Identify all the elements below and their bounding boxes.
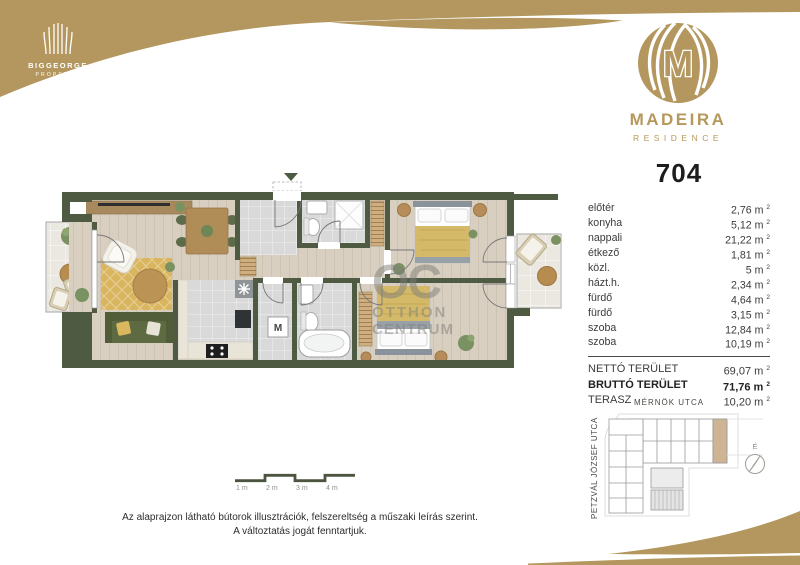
unit-info-panel: 704 előtér2,76 m 2konyha5,12 m 2nappali2… (588, 158, 770, 410)
sofa (105, 312, 173, 343)
headboard (413, 201, 472, 207)
room-label: fürdő (588, 307, 612, 322)
area-row: előtér2,76 m 2 (588, 202, 770, 217)
tv-console (78, 201, 192, 214)
developer-subtitle: PROPERTY (20, 72, 96, 78)
madeira-monogram: M (663, 43, 693, 84)
madeira-logo: M MADEIRA RESIDENCE (627, 22, 729, 143)
room-label: közl. (588, 262, 610, 277)
hall-closet (240, 257, 256, 276)
developer-name: BIGGEORGE (20, 61, 96, 70)
room-area-value: 2,34 m 2 (731, 277, 770, 292)
scale-label: 2 m (266, 485, 278, 492)
room-area-value: 10,19 m 2 (725, 336, 770, 351)
compass-icon: É (746, 442, 765, 474)
street-name-top: MÉRNÖK UTCA (634, 398, 704, 407)
room-label: szoba (588, 336, 616, 351)
unit-number: 704 (588, 158, 770, 189)
balcony-above-outline (273, 182, 301, 191)
room-label: NETTÓ TERÜLET (588, 363, 678, 378)
room-label: konyha (588, 217, 622, 232)
key-plan: MÉRNÖK UTCA PETZVÁL JÓZSEF UTCA É (585, 392, 780, 522)
washing-machine-label: M (274, 323, 282, 334)
blanket (415, 226, 470, 258)
pillow (116, 321, 131, 336)
tv (98, 203, 170, 206)
room-label: szoba (588, 322, 616, 337)
bed (413, 201, 472, 263)
room-area-value: 21,22 m 2 (725, 232, 770, 247)
highlighted-unit (713, 419, 727, 463)
area-row: szoba12,84 m 2 (588, 322, 770, 337)
room-label: étkező (588, 247, 619, 262)
headboard (375, 349, 432, 355)
biggeorge-logo-icon (20, 20, 96, 58)
watermark-oc: OC (372, 256, 441, 309)
madeira-logo-icon: M (637, 22, 719, 104)
wardrobe (359, 292, 372, 346)
area-row: szoba10,19 m 2 (588, 336, 770, 351)
disclaimer-line2: A változtatás jogát fenntartjuk. (0, 525, 600, 539)
oven (235, 310, 251, 328)
area-row: közl.5 m 2 (588, 262, 770, 277)
area-row: étkező1,81 m 2 (588, 247, 770, 262)
room-area-value: 1,81 m 2 (731, 247, 770, 262)
room-label: nappali (588, 232, 622, 247)
pillow (146, 321, 161, 336)
biggeorge-logo: BIGGEORGE PROPERTY (20, 20, 96, 78)
nightstand (474, 204, 487, 217)
scale-label: 4 m (326, 485, 338, 492)
area-row: fürdő4,64 m 2 (588, 292, 770, 307)
room-area-value: 5,12 m 2 (731, 217, 770, 232)
plant-icon (165, 262, 175, 272)
room-area-value: 69,07 m 2 (724, 363, 770, 378)
sink (307, 201, 327, 214)
brochure-page: BIGGEORGE PROPERTY M MADEIRA RESIDENCE 7… (0, 0, 800, 565)
room-label: előtér (588, 202, 615, 217)
area-row: házt.h.2,34 m 2 (588, 277, 770, 292)
room-label: házt.h. (588, 277, 620, 292)
room-area-value: 2,76 m 2 (731, 202, 770, 217)
wardrobe (371, 201, 384, 246)
residence-subtitle: RESIDENCE (627, 133, 729, 143)
room-label: fürdő (588, 292, 612, 307)
disclaimer: Az alaprajzon látható bútorok illusztrác… (0, 511, 600, 539)
entry-hall-floor (240, 199, 297, 255)
plant-icon (201, 225, 213, 237)
room-area-value: 3,15 m 2 (731, 307, 770, 322)
area-row: NETTÓ TERÜLET69,07 m 2 (588, 363, 770, 378)
pillow (445, 209, 468, 222)
cooktop (206, 344, 228, 358)
entrance-arrow-icon (284, 173, 298, 181)
street-name-left: PETZVÁL JÓZSEF UTCA (590, 417, 599, 519)
sink-icon (238, 283, 250, 295)
area-rows: előtér2,76 m 2konyha5,12 m 2nappali21,22… (588, 202, 770, 351)
scale-label: 3 m (296, 485, 308, 492)
area-row: fürdő3,15 m 2 (588, 307, 770, 322)
watermark-otthon: OTTHON (372, 304, 447, 321)
residence-name: MADEIRA (627, 110, 729, 130)
area-row: nappali21,22 m 2 (588, 232, 770, 247)
terrace-table (538, 267, 557, 286)
pillow (418, 209, 441, 222)
scale-bar: 1 m 2 m 3 m 4 m (226, 466, 376, 494)
area-row: konyha5,12 m 2 (588, 217, 770, 232)
floor-plan: M (20, 170, 576, 406)
utility-room: M (268, 317, 288, 337)
plant-icon (469, 230, 478, 239)
terrace-right (515, 233, 561, 308)
pouf (133, 269, 167, 303)
plant-icon (551, 235, 561, 245)
room-area-value: 5 m 2 (746, 262, 770, 277)
plant-icon (175, 202, 185, 212)
disclaimer-line1: Az alaprajzon látható bútorok illusztrác… (0, 511, 600, 525)
plant-icon (75, 288, 89, 302)
scale-label: 1 m (236, 485, 248, 492)
watermark-centrum: CENTRUM (372, 321, 454, 338)
compass-label: É (752, 442, 757, 451)
room-area-value: 12,84 m 2 (725, 322, 770, 337)
nightstand (398, 204, 411, 217)
room-area-value: 4,64 m 2 (731, 292, 770, 307)
